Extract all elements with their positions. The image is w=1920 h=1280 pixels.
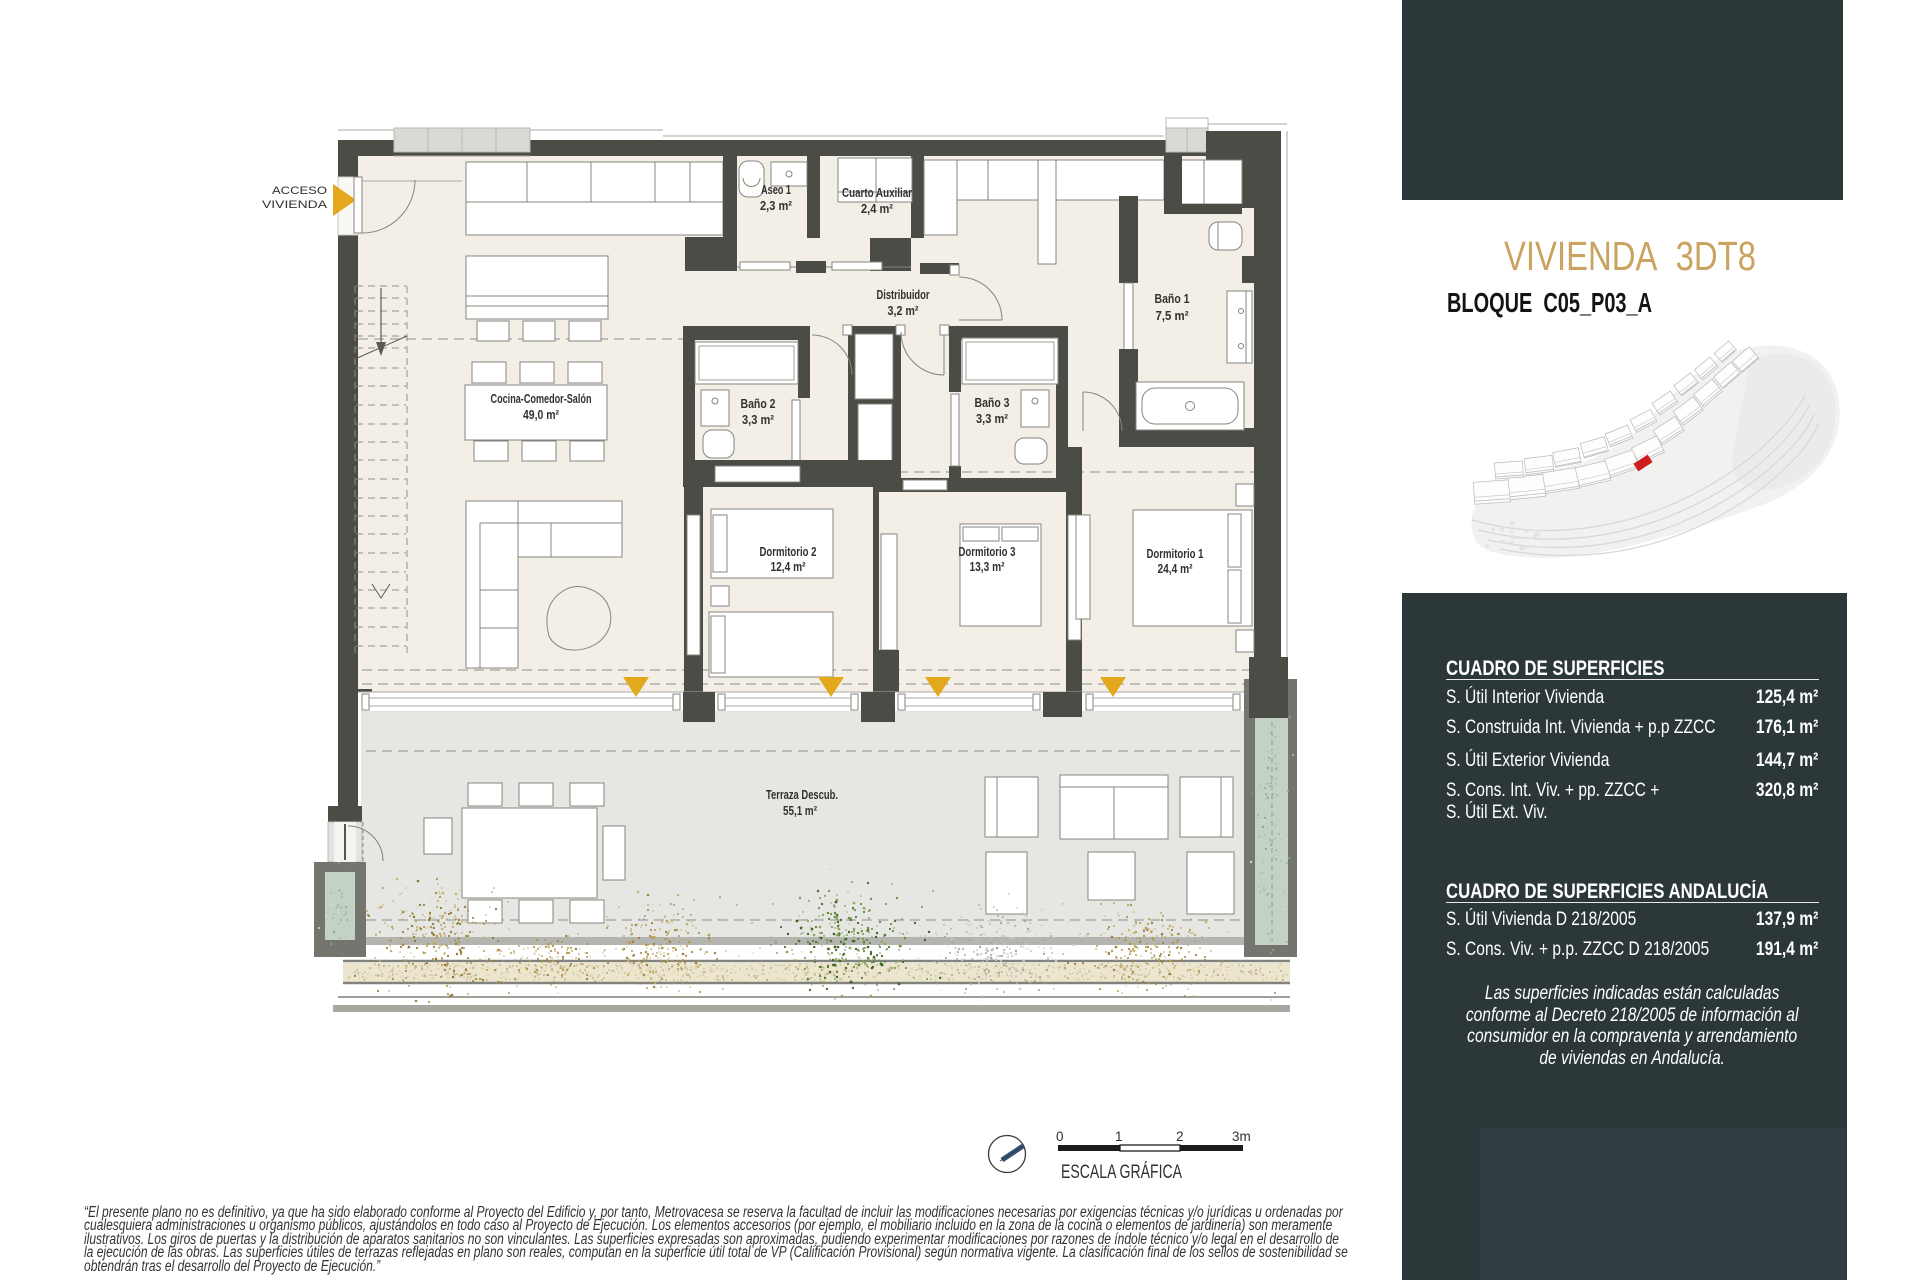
svg-text:49,0 m²: 49,0 m² bbox=[523, 407, 560, 422]
svg-text:VIVIENDA 3DT8: VIVIENDA 3DT8 bbox=[1504, 233, 1756, 279]
svg-text:55,1 m²: 55,1 m² bbox=[783, 803, 818, 818]
svg-text:Dormitorio 3: Dormitorio 3 bbox=[959, 544, 1016, 559]
svg-text:12,4 m²: 12,4 m² bbox=[771, 559, 807, 574]
svg-text:Baño 2: Baño 2 bbox=[741, 396, 776, 411]
svg-text:1: 1 bbox=[1115, 1129, 1123, 1144]
svg-text:24,4 m²: 24,4 m² bbox=[1158, 561, 1194, 576]
svg-text:Cocina-Comedor-Salón: Cocina-Comedor-Salón bbox=[491, 391, 592, 406]
svg-text:Cuarto Auxiliar: Cuarto Auxiliar bbox=[842, 185, 912, 200]
svg-text:2,4 m²: 2,4 m² bbox=[861, 201, 894, 216]
svg-text:7,5 m²: 7,5 m² bbox=[1156, 308, 1190, 323]
svg-text:3,3 m²: 3,3 m² bbox=[976, 411, 1009, 426]
svg-text:0: 0 bbox=[1056, 1129, 1064, 1144]
svg-text:ESCALA GRÁFICA: ESCALA GRÁFICA bbox=[1061, 1160, 1182, 1183]
svg-text:3,3 m²: 3,3 m² bbox=[742, 412, 775, 427]
svg-text:Baño 3: Baño 3 bbox=[975, 395, 1010, 410]
svg-text:13,3 m²: 13,3 m² bbox=[970, 559, 1006, 574]
svg-text:Dormitorio 2: Dormitorio 2 bbox=[760, 544, 817, 559]
svg-text:Terraza Descub.: Terraza Descub. bbox=[766, 787, 838, 802]
svg-text:VIVIENDA: VIVIENDA bbox=[262, 199, 328, 211]
svg-text:BLOQUE C05_P03_A: BLOQUE C05_P03_A bbox=[1447, 287, 1652, 318]
svg-text:2: 2 bbox=[1176, 1129, 1184, 1144]
svg-text:Aseo 1: Aseo 1 bbox=[761, 182, 791, 197]
svg-text:2,3 m²: 2,3 m² bbox=[760, 198, 793, 213]
svg-text:3m: 3m bbox=[1232, 1129, 1251, 1144]
svg-text:Dormitorio 1: Dormitorio 1 bbox=[1147, 546, 1204, 561]
svg-text:3,2 m²: 3,2 m² bbox=[888, 303, 920, 318]
svg-text:ACCESO: ACCESO bbox=[272, 185, 328, 197]
svg-text:Distribuidor: Distribuidor bbox=[877, 287, 930, 302]
svg-text:Baño 1: Baño 1 bbox=[1155, 291, 1190, 306]
